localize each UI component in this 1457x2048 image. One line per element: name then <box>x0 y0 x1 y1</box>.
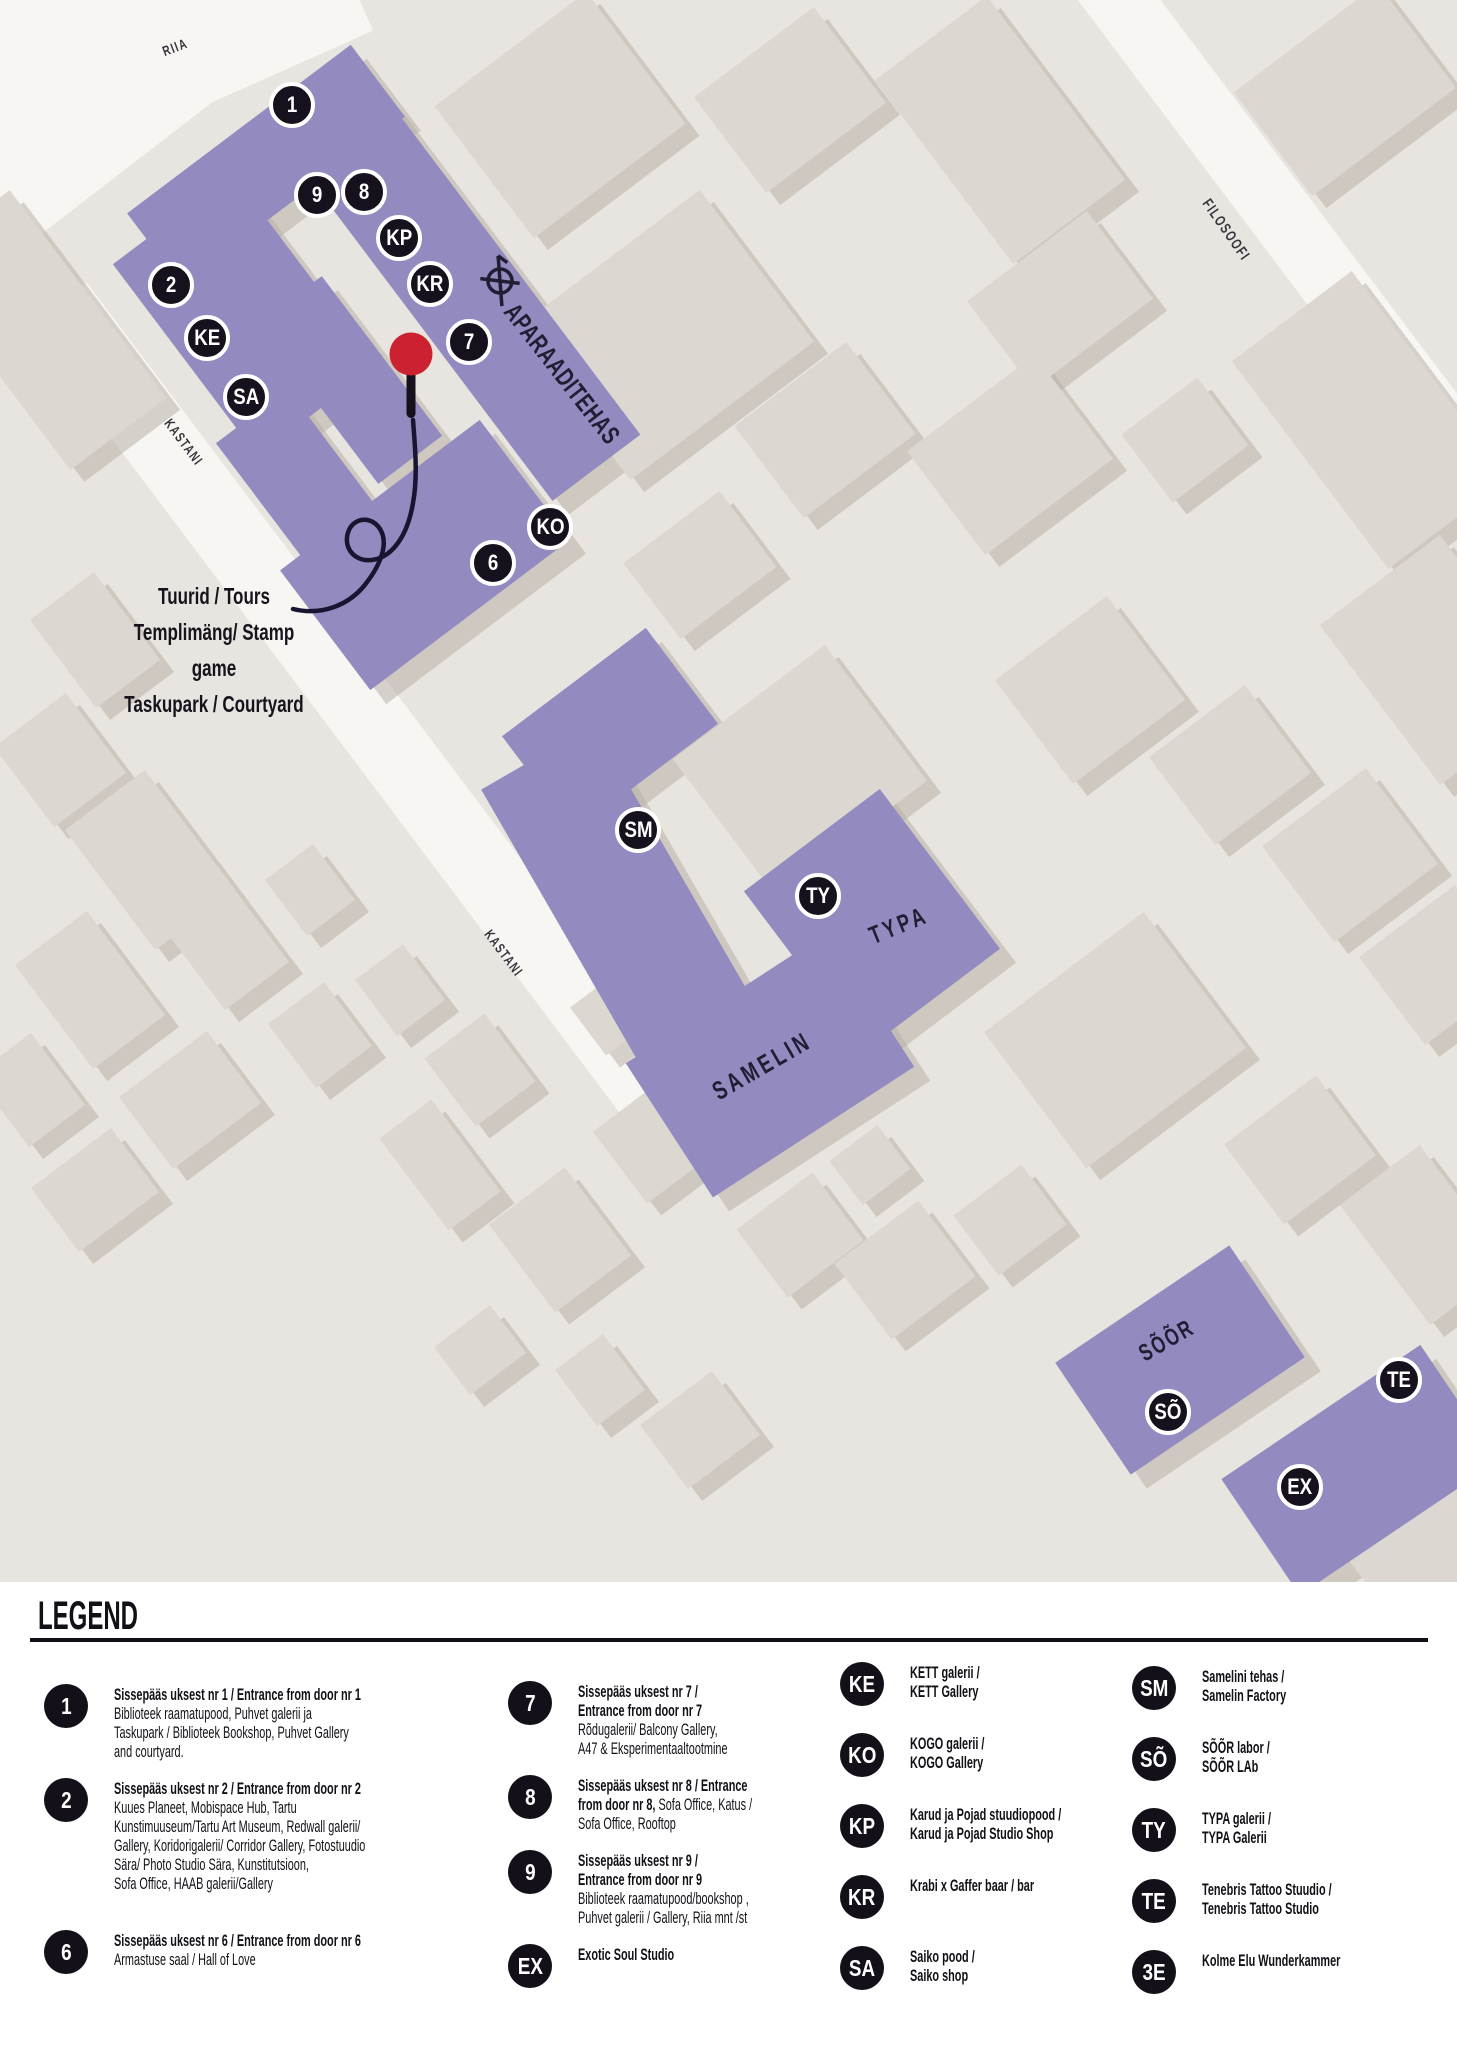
legend-badge-ko: KO <box>840 1733 884 1777</box>
legend-entry-part: Tenebris Tattoo Studio <box>1202 1900 1319 1918</box>
legend-entry-line: Biblioteek raamatupood/bookshop , <box>578 1890 855 1909</box>
legend-entry-2: 2Sissepääs uksest nr 2 / Entrance from d… <box>44 1778 534 1894</box>
legend-entry-part: Armastuse saal / Hall of Love <box>114 1951 256 1969</box>
legend-column-1: 1Sissepääs uksest nr 1 / Entrance from d… <box>44 1684 534 1990</box>
legend-entry-line: Samelin Factory <box>1202 1687 1457 1706</box>
legend-entry-line: Armastuse saal / Hall of Love <box>114 1951 391 1970</box>
legend-entry-line: Puhvet galerii / Gallery, Riia mnt /st <box>578 1909 855 1928</box>
legend-entry-line: from door nr 8, Sofa Office, Katus / <box>578 1796 855 1815</box>
legend-badge-s: SÕ <box>1132 1737 1176 1781</box>
map-marker-8: 8 <box>341 169 387 215</box>
legend-badge-te: TE <box>1132 1879 1176 1923</box>
legend-badge-label: 6 <box>61 1939 71 1966</box>
legend-entry-line: Taskupark / Biblioteek Bookshop, Puhvet … <box>114 1724 391 1743</box>
legend-badge-1: 1 <box>44 1684 88 1728</box>
legend-badge-ke: KE <box>840 1662 884 1706</box>
map-marker-kp: KP <box>376 215 422 261</box>
legend-entry-part: SÕÕR LAb <box>1202 1758 1258 1776</box>
legend-entry-line: Sissepääs uksest nr 2 / Entrance from do… <box>114 1780 391 1799</box>
legend-entry-line: Sofa Office, HAAB galerii/Gallery <box>114 1875 391 1894</box>
legend-entry-line: and courtyard. <box>114 1743 391 1762</box>
pin-annotation-line-3: Taskupark / Courtyard <box>116 686 311 722</box>
map-marker-label: KO <box>536 514 564 540</box>
legend-entry-1: 1Sissepääs uksest nr 1 / Entrance from d… <box>44 1684 534 1762</box>
legend-badge-ex: EX <box>508 1944 552 1988</box>
legend-title: LEGEND <box>38 1594 138 1639</box>
legend-badge-3e: 3E <box>1132 1950 1176 1994</box>
legend-entry-line: A47 & Eksperimentaaltootmine <box>578 1740 855 1759</box>
legend-entry-text: Sissepääs uksest nr 6 / Entrance from do… <box>114 1930 391 1970</box>
map-marker-label: TE <box>1387 1367 1411 1393</box>
legend-entry-part: KETT galerii / <box>910 1664 980 1682</box>
map-marker-label: KP <box>386 225 412 251</box>
legend-entry-text: Sissepääs uksest nr 7 /Entrance from doo… <box>578 1681 855 1759</box>
legend-entry-line: Entrance from door nr 7 <box>578 1702 855 1721</box>
legend-badge-kp: KP <box>840 1804 884 1848</box>
legend-entry-part: KOGO Gallery <box>910 1754 983 1772</box>
legend-entry-part: A47 & Eksperimentaaltootmine <box>578 1740 728 1758</box>
pin-annotation-line-1: Tuurid / Tours <box>116 578 311 614</box>
map-marker-s: SÕ <box>1145 1389 1191 1435</box>
legend-entry-line: TYPA galerii / <box>1202 1810 1457 1829</box>
legend-entry-part: Sissepääs uksest nr 9 / <box>578 1852 698 1870</box>
map-marker-label: 1 <box>287 92 297 118</box>
map-marker-label: SM <box>624 817 652 843</box>
legend-badge-label: 9 <box>525 1859 535 1886</box>
legend-entry-part: Sära/ Photo Studio Sära, Kunstitutsioon, <box>114 1856 309 1874</box>
legend-entry-line: SÕÕR LAb <box>1202 1758 1457 1777</box>
legend-badge-6: 6 <box>44 1930 88 1974</box>
legend-entry-part: Sofa Office, Rooftop <box>578 1815 676 1833</box>
legend-badge-label: 3E <box>1142 1959 1165 1986</box>
legend-entry-line: Samelini tehas / <box>1202 1668 1457 1687</box>
legend-entry-part: Kunstimuuseum/Tartu Art Museum, Redwall … <box>114 1818 360 1836</box>
legend-entry-text: Tenebris Tattoo Stuudio /Tenebris Tattoo… <box>1202 1879 1457 1919</box>
legend-badge-label: 8 <box>525 1784 535 1811</box>
legend-entry-text: SÕÕR labor /SÕÕR LAb <box>1202 1737 1457 1777</box>
legend-entry-part: Sofa Office, HAAB galerii/Gallery <box>114 1875 273 1893</box>
legend-entry-line: Kunstimuuseum/Tartu Art Museum, Redwall … <box>114 1818 391 1837</box>
map-marker-label: 2 <box>166 272 176 298</box>
map-marker-kr: KR <box>407 261 453 307</box>
map-marker-label: 6 <box>488 550 498 576</box>
legend-entry-part: SÕÕR labor / <box>1202 1739 1270 1757</box>
legend-badge-label: SA <box>849 1955 875 1982</box>
legend-badge-label: KP <box>849 1813 875 1840</box>
map-marker-2: 2 <box>148 262 194 308</box>
legend-entry-s: SÕSÕÕR labor /SÕÕR LAb <box>1132 1737 1457 1781</box>
legend-section: LEGEND 1Sissepääs uksest nr 1 / Entrance… <box>0 1582 1457 2048</box>
map-marker-ko: KO <box>527 504 573 550</box>
legend-entry-part: TYPA Galerii <box>1202 1829 1267 1847</box>
legend-badge-8: 8 <box>508 1775 552 1819</box>
legend-badge-label: 2 <box>61 1787 71 1814</box>
legend-entry-6: 6Sissepääs uksest nr 6 / Entrance from d… <box>44 1930 534 1974</box>
map-marker-1: 1 <box>269 82 315 128</box>
map-marker-7: 7 <box>446 319 492 365</box>
legend-entry-part: Kolme Elu Wunderkammer <box>1202 1952 1340 1970</box>
legend-entry-part: Samelin Factory <box>1202 1687 1286 1705</box>
map-marker-label: KR <box>416 271 443 297</box>
map-marker-sa: SA <box>223 374 269 420</box>
legend-entry-line: Entrance from door nr 9 <box>578 1871 855 1890</box>
legend-divider <box>30 1638 1428 1642</box>
legend-entry-part: Taskupark / Biblioteek Bookshop, Puhvet … <box>114 1724 349 1742</box>
legend-entry-part: Entrance from door nr 9 <box>578 1871 702 1889</box>
legend-badge-ty: TY <box>1132 1808 1176 1852</box>
district-map: Tuurid / Tours Templimäng/ Stamp game Ta… <box>0 0 1457 1582</box>
legend-entry-part: Karud ja Pojad stuudiopood / <box>910 1806 1061 1824</box>
legend-entry-text: Sissepääs uksest nr 2 / Entrance from do… <box>114 1778 391 1894</box>
legend-entry-part: Sissepääs uksest nr 6 / Entrance from do… <box>114 1932 361 1950</box>
legend-badge-label: TY <box>1142 1817 1166 1844</box>
legend-entry-sm: SMSamelini tehas /Samelin Factory <box>1132 1666 1457 1710</box>
legend-entry-part: Saiko shop <box>910 1967 968 1985</box>
legend-entry-line: SÕÕR labor / <box>1202 1739 1457 1758</box>
legend-badge-sa: SA <box>840 1946 884 1990</box>
legend-entry-part: Biblioteek raamatupood, Puhvet galerii j… <box>114 1705 312 1723</box>
pin-annotation-line-2: Templimäng/ Stamp game <box>116 614 311 686</box>
legend-entry-line: Tenebris Tattoo Stuudio / <box>1202 1881 1457 1900</box>
legend-entry-text: Sissepääs uksest nr 9 /Entrance from doo… <box>578 1850 855 1928</box>
legend-entry-part: Sissepääs uksest nr 8 / Entrance <box>578 1777 747 1795</box>
map-marker-label: SÕ <box>1154 1399 1181 1425</box>
legend-entry-line: Rõdugalerii/ Balcony Gallery, <box>578 1721 855 1740</box>
legend-column-4: SMSamelini tehas /Samelin FactorySÕSÕÕR … <box>1132 1666 1457 2021</box>
poster-map-page: { "map": { "colors": { "background": "#e… <box>0 0 1457 2048</box>
legend-entry-line: Sofa Office, Rooftop <box>578 1815 855 1834</box>
legend-entry-line: Sissepääs uksest nr 9 / <box>578 1852 855 1871</box>
map-marker-label: 9 <box>312 182 322 208</box>
legend-entry-line: Sissepääs uksest nr 6 / Entrance from do… <box>114 1932 391 1951</box>
legend-entry-part: Sissepääs uksest nr 7 / <box>578 1683 698 1701</box>
legend-entry-part: Karud ja Pojad Studio Shop <box>910 1825 1053 1843</box>
legend-entry-text: Sissepääs uksest nr 8 / Entrancefrom doo… <box>578 1775 855 1834</box>
legend-badge-label: 1 <box>61 1693 71 1720</box>
pin-annotation: Tuurid / Tours Templimäng/ Stamp game Ta… <box>116 578 311 722</box>
legend-entry-line: Kuues Planeet, Mobispace Hub, Tartu <box>114 1799 391 1818</box>
map-marker-label: EX <box>1288 1474 1313 1500</box>
legend-entry-text: Sissepääs uksest nr 1 / Entrance from do… <box>114 1684 391 1762</box>
legend-entry-line: Tenebris Tattoo Studio <box>1202 1900 1457 1919</box>
legend-badge-label: KE <box>849 1671 875 1698</box>
legend-entry-part: Puhvet galerii / Gallery, Riia mnt /st <box>578 1909 747 1927</box>
legend-entry-line: Exotic Soul Studio <box>578 1946 855 1965</box>
legend-badge-2: 2 <box>44 1778 88 1822</box>
legend-badge-label: TE <box>1142 1888 1166 1915</box>
legend-entry-line: Kolme Elu Wunderkammer <box>1202 1952 1457 1971</box>
legend-entry-part: Sissepääs uksest nr 2 / Entrance from do… <box>114 1780 361 1798</box>
map-marker-ex: EX <box>1277 1464 1323 1510</box>
map-marker-label: 8 <box>359 179 369 205</box>
map-marker-label: SA <box>233 384 259 410</box>
legend-entry-part: Saiko pood / <box>910 1948 975 1966</box>
map-marker-sm: SM <box>615 807 661 853</box>
map-marker-6: 6 <box>470 540 516 586</box>
map-marker-9: 9 <box>294 172 340 218</box>
legend-badge-sm: SM <box>1132 1666 1176 1710</box>
legend-badge-label: EX <box>517 1953 542 1980</box>
legend-entry-part: Tenebris Tattoo Stuudio / <box>1202 1881 1332 1899</box>
legend-badge-kr: KR <box>840 1875 884 1919</box>
legend-entry-line: Sissepääs uksest nr 7 / <box>578 1683 855 1702</box>
legend-entry-line: Sissepääs uksest nr 8 / Entrance <box>578 1777 855 1796</box>
legend-badge-label: SM <box>1140 1675 1168 1702</box>
legend-entry-line: Biblioteek raamatupood, Puhvet galerii j… <box>114 1705 391 1724</box>
legend-entry-3e: 3EKolme Elu Wunderkammer <box>1132 1950 1457 1994</box>
legend-entry-text: Kolme Elu Wunderkammer <box>1202 1950 1457 1971</box>
legend-entry-line: Sära/ Photo Studio Sära, Kunstitutsioon, <box>114 1856 391 1875</box>
legend-entry-part: Entrance from door nr 7 <box>578 1702 702 1720</box>
legend-badge-label: KO <box>848 1742 876 1769</box>
legend-entry-part: Krabi x Gaffer baar / bar <box>910 1877 1034 1895</box>
legend-entry-part: Kuues Planeet, Mobispace Hub, Tartu <box>114 1799 297 1817</box>
legend-entry-text: TYPA galerii /TYPA Galerii <box>1202 1808 1457 1848</box>
legend-entry-part: Exotic Soul Studio <box>578 1946 674 1964</box>
legend-entry-text: Exotic Soul Studio <box>578 1944 855 1965</box>
map-marker-label: KE <box>194 325 220 351</box>
legend-entry-te: TETenebris Tattoo Stuudio /Tenebris Tatt… <box>1132 1879 1457 1923</box>
legend-entry-line: TYPA Galerii <box>1202 1829 1457 1848</box>
legend-entry-part: KOGO galerii / <box>910 1735 984 1753</box>
legend-entry-ty: TYTYPA galerii /TYPA Galerii <box>1132 1808 1457 1852</box>
map-marker-ty: TY <box>795 873 841 919</box>
map-marker-label: 7 <box>464 329 474 355</box>
legend-entry-text: Samelini tehas /Samelin Factory <box>1202 1666 1457 1706</box>
map-marker-label: TY <box>806 883 830 909</box>
legend-badge-label: 7 <box>525 1690 535 1717</box>
legend-badge-7: 7 <box>508 1681 552 1725</box>
legend-entry-part: Sissepääs uksest nr 1 / Entrance from do… <box>114 1686 361 1704</box>
legend-entry-part: Rõdugalerii/ Balcony Gallery, <box>578 1721 718 1739</box>
legend-entry-line: Gallery, Koridorigalerii/ Corridor Galle… <box>114 1837 391 1856</box>
legend-entry-part: Sofa Office, Katus / <box>655 1796 752 1814</box>
legend-badge-label: SÕ <box>1140 1746 1167 1773</box>
legend-badge-label: KR <box>848 1884 875 1911</box>
legend-entry-part: Samelini tehas / <box>1202 1668 1284 1686</box>
legend-badge-9: 9 <box>508 1850 552 1894</box>
legend-entry-line: Sissepääs uksest nr 1 / Entrance from do… <box>114 1686 391 1705</box>
legend-entry-part: from door nr 8, <box>578 1796 655 1814</box>
map-marker-te: TE <box>1376 1357 1422 1403</box>
legend-entry-part: and courtyard. <box>114 1743 184 1761</box>
legend-entry-part: Biblioteek raamatupood/bookshop , <box>578 1890 749 1908</box>
legend-entry-part: Gallery, Koridorigalerii/ Corridor Galle… <box>114 1837 365 1855</box>
map-marker-ke: KE <box>184 315 230 361</box>
legend-entry-part: KETT Gallery <box>910 1683 978 1701</box>
legend-entry-part: TYPA galerii / <box>1202 1810 1271 1828</box>
